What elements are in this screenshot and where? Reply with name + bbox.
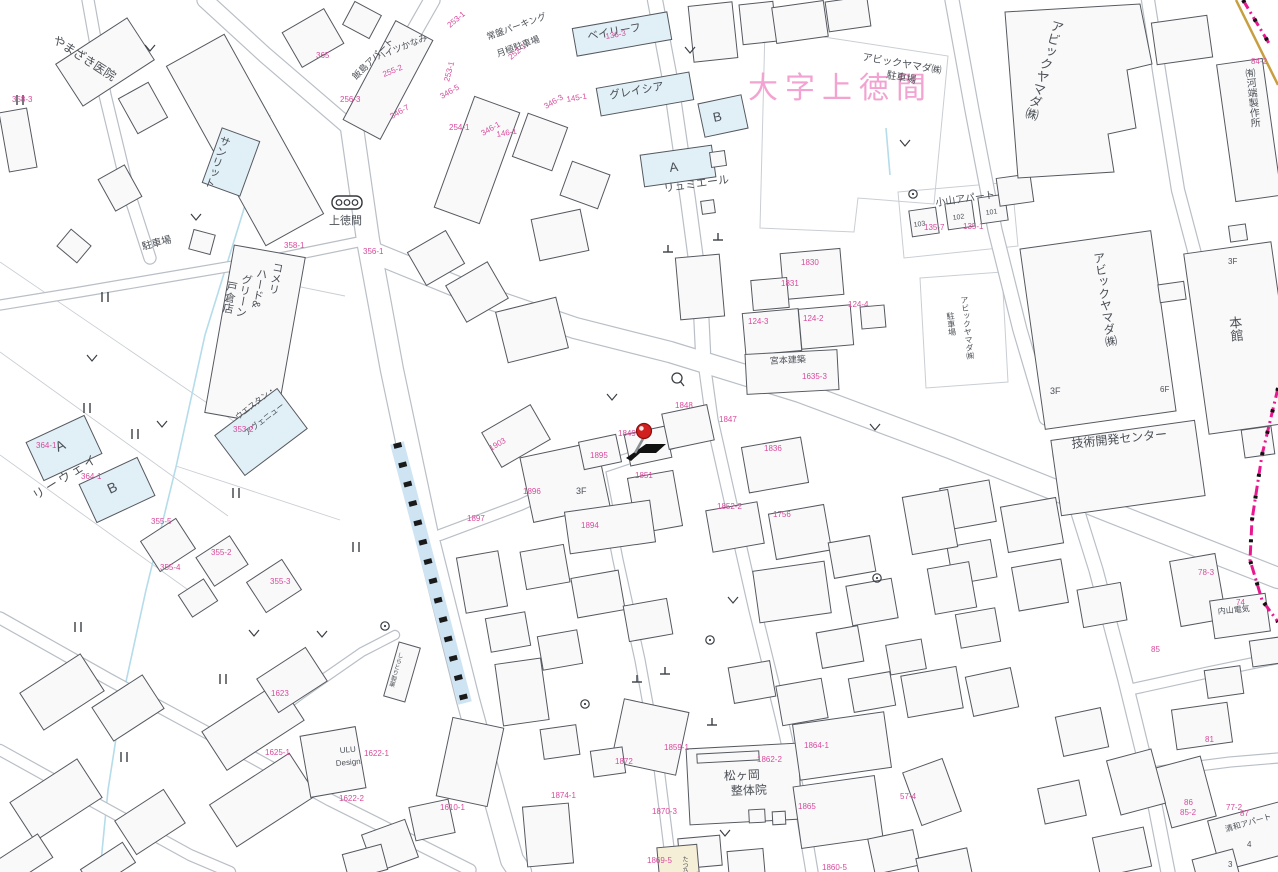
map-canvas: 大字上徳間やまざき医院サンリット駐車場コメリハード&グリーン戸倉店ウエスタン・ア… [0, 0, 1278, 872]
map-name-label: 3 [1228, 860, 1233, 869]
parcel-number-label: 87 [1240, 809, 1249, 818]
parcel-number-label: 1622-1 [364, 749, 389, 758]
well-symbol-icon [709, 639, 711, 641]
building [776, 678, 828, 725]
parcel-number-label: 86 [1184, 798, 1193, 807]
building [742, 309, 801, 356]
building [1151, 15, 1212, 64]
parcel-number-label: 124-3 [748, 317, 769, 326]
building [520, 544, 570, 589]
parcel-number-label: 1610-1 [440, 803, 465, 812]
building [816, 626, 864, 669]
building [495, 658, 549, 726]
parcel-number-label: 1852-2 [717, 502, 742, 511]
building [828, 536, 876, 579]
building [1000, 497, 1063, 552]
parcel-number-label: 1851 [635, 471, 653, 480]
parcel-number-label: 254-1 [449, 123, 470, 132]
parcel-number-label: 364-1 [36, 441, 57, 450]
parcel-number-label: 1831 [781, 279, 799, 288]
location-pin[interactable] [637, 424, 652, 439]
well-symbol-icon [912, 193, 914, 195]
building [1249, 637, 1278, 667]
building [772, 1, 829, 44]
building [793, 776, 883, 849]
map-name-label: 6F [1160, 385, 1169, 394]
parcel-number-label: 124-2 [803, 314, 824, 323]
parcel-number-label: 353-2 [233, 425, 254, 434]
parcel-number-label: 356-1 [363, 247, 384, 256]
parcel-number-label: 1623 [271, 689, 289, 698]
building [710, 151, 727, 168]
map-name-label: 本館 [1227, 315, 1245, 343]
building [1158, 281, 1186, 302]
building [1228, 224, 1247, 242]
map-name-label: 宮本建築 [770, 353, 807, 366]
parcel-number-label: 358-1 [284, 241, 305, 250]
parcel-number-label: 1756 [773, 510, 791, 519]
parcel-number-label: 135-7 [924, 223, 945, 232]
parcel-number-label: 1872 [615, 757, 633, 766]
parcel-number-label: 135-1 [963, 222, 984, 231]
pin-highlight [639, 426, 644, 431]
building [675, 254, 724, 320]
map-name-label: 整体院 [731, 782, 768, 798]
building [846, 578, 898, 625]
parcel-number-label: 57-4 [900, 792, 917, 801]
building [996, 174, 1034, 206]
building [825, 0, 871, 32]
building [886, 639, 927, 675]
parcel-number-label: 364-1 [81, 472, 102, 481]
well-symbol-icon [876, 577, 878, 579]
parcel-number-label: 355-5 [151, 517, 172, 526]
building [688, 2, 738, 62]
building [540, 725, 580, 760]
parcel-number-label: 355-4 [160, 563, 181, 572]
parcel-number-label: 1894 [581, 521, 599, 530]
parcel-number-label: 358-3 [12, 95, 33, 104]
parcel-number-label: 1897 [467, 514, 485, 523]
parcel-number-label: 1896 [523, 487, 541, 496]
parcel-number-label: 1836 [764, 444, 782, 453]
building [522, 803, 573, 867]
map-name-label: 3F [1228, 257, 1237, 266]
parcel-number-label: 81 [1205, 735, 1214, 744]
building [927, 562, 976, 615]
parcel-number-label: 1625-1 [265, 748, 290, 757]
building [1012, 559, 1069, 611]
building [1204, 666, 1244, 699]
building [780, 248, 844, 299]
parcel-number-label: 355-3 [270, 577, 291, 586]
building [902, 489, 957, 554]
parcel-number-label: 85 [1151, 645, 1160, 654]
parcel-number-label: 1859-1 [664, 743, 689, 752]
building [901, 666, 963, 717]
building [485, 612, 530, 652]
building [1171, 702, 1232, 749]
building [1241, 426, 1275, 458]
map-name-label: 4 [1247, 840, 1252, 849]
map-name-label: たつ乃屋 [681, 856, 688, 872]
building [727, 848, 765, 872]
well-symbol-icon [584, 703, 586, 705]
building [537, 630, 582, 670]
map: 大字上徳間やまざき医院サンリット駐車場コメリハード&グリーン戸倉店ウエスタン・ア… [0, 0, 1278, 872]
parcel-number-label: 1622-2 [339, 794, 364, 803]
parcel-number-label: 124-4 [848, 300, 869, 309]
building [798, 305, 853, 349]
building [1077, 582, 1127, 627]
building [571, 570, 625, 618]
parcel-number-label: 85-2 [1180, 808, 1197, 817]
bus-stop-label: 上徳間 [329, 214, 362, 227]
parcel-number-label: 1874-1 [551, 791, 576, 800]
parcel-number-label: 1849 [618, 429, 636, 438]
parcel-number-label: 1864-1 [804, 741, 829, 750]
building [749, 809, 766, 823]
parcel-number-label: 1862-2 [757, 755, 782, 764]
parcel-number-label: 1870-3 [652, 807, 677, 816]
parcel-number-label: 1847 [719, 415, 737, 424]
map-name-label: 松ヶ岡 [724, 768, 760, 783]
building [753, 561, 832, 623]
parcel-number-label: 84-2 [1251, 57, 1268, 66]
building [772, 811, 786, 825]
building [848, 672, 895, 713]
well-symbol-icon [384, 625, 386, 627]
parcel-number-label: 74 [1236, 598, 1245, 607]
building [728, 661, 776, 704]
building [955, 608, 1000, 648]
map-name-label: ULU [339, 745, 356, 755]
parcel-number-label: 1635-3 [802, 372, 827, 381]
map-name-label: 3F [1050, 386, 1061, 396]
parcel-number-label: 1830 [801, 258, 819, 267]
building [623, 598, 673, 641]
building [456, 551, 507, 613]
parcel-number-label: 355-2 [211, 548, 232, 557]
map-name-label: 3F [576, 486, 587, 496]
parcel-number-label: 1869-5 [647, 856, 672, 865]
parcel-number-label: 1895 [590, 451, 608, 460]
parcel-number-label: 256-3 [340, 95, 361, 104]
parcel-number-label: 365 [316, 51, 330, 60]
parcel-number-label: 1865 [798, 802, 816, 811]
parcel-number-label: 78-3 [1198, 568, 1215, 577]
parcel-number-label: 1860-5 [822, 863, 847, 872]
parcel-number-label: 1848 [675, 401, 693, 410]
building [701, 200, 716, 215]
